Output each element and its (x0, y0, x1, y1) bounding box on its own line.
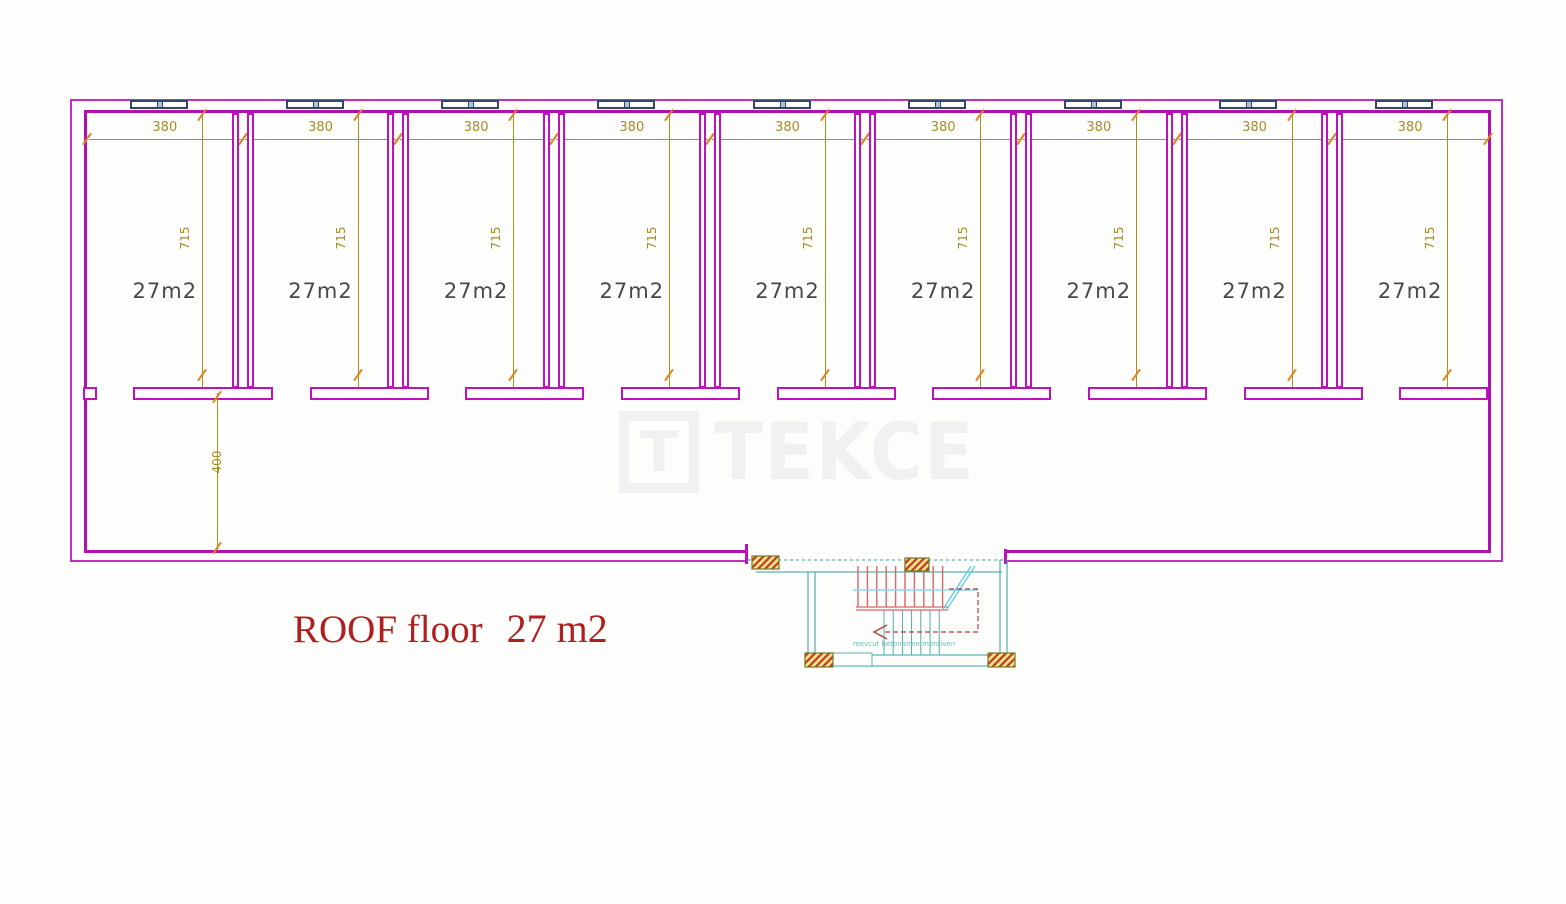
room: 38071527m2 (87, 113, 243, 388)
partition-wall (543, 113, 550, 388)
window-mullion (468, 102, 474, 107)
depth-dimension-line (1447, 115, 1448, 387)
column-hatch (988, 653, 1015, 667)
depth-dimension-line (1136, 115, 1137, 387)
depth-dimension-line (513, 115, 514, 387)
floor-title: ROOF floor (293, 607, 483, 652)
window-mullion (1091, 102, 1097, 107)
partition-wall (402, 113, 409, 388)
width-dimension-label: 380 (554, 120, 710, 135)
column-hatch (752, 556, 779, 569)
width-dimension-label: 380 (1332, 120, 1488, 135)
width-dimension-line (867, 139, 1019, 140)
window (908, 100, 966, 109)
width-dimension-line (712, 139, 864, 140)
width-dimension-line (1334, 139, 1486, 140)
width-dimension-line (245, 139, 397, 140)
room: 38071527m2 (1332, 113, 1488, 388)
partition-wall (387, 113, 394, 388)
room: 38071527m2 (398, 113, 554, 388)
partition-wall (558, 113, 565, 388)
width-dimension-label: 380 (398, 120, 554, 135)
window-mullion (780, 102, 786, 107)
column-hatch (905, 558, 929, 571)
width-dimension-label: 380 (1177, 120, 1333, 135)
window (597, 100, 655, 109)
floor-area-label: 27 m2 (507, 605, 608, 652)
stairwell: mevcut betonarme merdiven (745, 545, 1020, 677)
partition-wall (699, 113, 706, 388)
window-mullion (1246, 102, 1252, 107)
room: 38071527m2 (865, 113, 1021, 388)
window (130, 100, 188, 109)
window (1064, 100, 1122, 109)
depth-dimension-label: 715 (334, 214, 348, 262)
room-area-label: 27m2 (1021, 279, 1177, 303)
width-dimension-label: 380 (865, 120, 1021, 135)
depth-dimension-line (1292, 115, 1293, 387)
bottom-wall-segment (1244, 387, 1363, 400)
stair-bottom-opening (832, 653, 872, 666)
width-dimension-label: 380 (243, 120, 399, 135)
partition-wall (1166, 113, 1173, 388)
width-dimension-line (556, 139, 708, 140)
window-mullion (313, 102, 319, 107)
window-mullion (935, 102, 941, 107)
room-area-label: 27m2 (1177, 279, 1333, 303)
partition-wall (1025, 113, 1032, 388)
bottom-wall-segment (1399, 387, 1488, 400)
partition-wall (1321, 113, 1328, 388)
partition-wall (232, 113, 239, 388)
partition-wall (869, 113, 876, 388)
depth-dimension-line (825, 115, 826, 387)
partition-wall (854, 113, 861, 388)
bottom-wall-segment (932, 387, 1051, 400)
window (1219, 100, 1277, 109)
width-dimension-label: 380 (1021, 120, 1177, 135)
room: 38071527m2 (554, 113, 710, 388)
bottom-wall-segment (777, 387, 896, 400)
room-area-label: 27m2 (243, 279, 399, 303)
bottom-wall-segment (1088, 387, 1207, 400)
window (1375, 100, 1433, 109)
width-dimension-label: 380 (87, 120, 243, 135)
room: 38071527m2 (243, 113, 399, 388)
stair-note: mevcut betonarme merdiven (853, 640, 955, 648)
room-area-label: 27m2 (1332, 279, 1488, 303)
room: 38071527m2 (1177, 113, 1333, 388)
width-dimension-line (89, 139, 241, 140)
width-dimension-line (1023, 139, 1175, 140)
room-area-label: 27m2 (398, 279, 554, 303)
bottom-wall-segment (621, 387, 740, 400)
window-mullion (624, 102, 630, 107)
depth-dimension-line (358, 115, 359, 387)
room-area-label: 27m2 (87, 279, 243, 303)
room-area-label: 27m2 (710, 279, 866, 303)
window-mullion (1402, 102, 1408, 107)
depth-dimension-label: 715 (489, 214, 503, 262)
room-area-label: 27m2 (554, 279, 710, 303)
room: 38071527m2 (710, 113, 866, 388)
partition-wall (1010, 113, 1017, 388)
width-dimension-line (1179, 139, 1331, 140)
depth-dimension-label: 715 (1268, 214, 1282, 262)
bottom-wall-segment (465, 387, 584, 400)
room: 38071527m2 (1021, 113, 1177, 388)
window (441, 100, 499, 109)
depth-dimension-label: 715 (956, 214, 970, 262)
bottom-wall-stub (83, 387, 97, 400)
window-mullion (157, 102, 163, 107)
width-dimension-line (400, 139, 552, 140)
depth-dimension-label: 715 (645, 214, 659, 262)
floor-title-row: ROOF floor 27 m2 (293, 605, 608, 652)
depth-dimension-label: 715 (178, 214, 192, 262)
partition-wall (247, 113, 254, 388)
room-area-label: 27m2 (865, 279, 1021, 303)
depth-dimension-line (202, 115, 203, 387)
depth-dimension-label: 715 (1423, 214, 1437, 262)
window (753, 100, 811, 109)
depth-dimension-label: 715 (1112, 214, 1126, 262)
depth-dimension-line (669, 115, 670, 387)
partition-wall (1181, 113, 1188, 388)
bottom-wall-segment (133, 387, 273, 400)
partition-wall (714, 113, 721, 388)
depth-dimension-label: 715 (801, 214, 815, 262)
corridor-depth-label: 400 (210, 436, 224, 488)
width-dimension-label: 380 (710, 120, 866, 135)
column-hatch (805, 653, 833, 667)
floor-plan: T TEKCE 38071527m238071527m238071527m238… (0, 0, 1566, 904)
bottom-wall-segment (310, 387, 429, 400)
window (286, 100, 344, 109)
partition-wall (1336, 113, 1343, 388)
depth-dimension-line (980, 115, 981, 387)
